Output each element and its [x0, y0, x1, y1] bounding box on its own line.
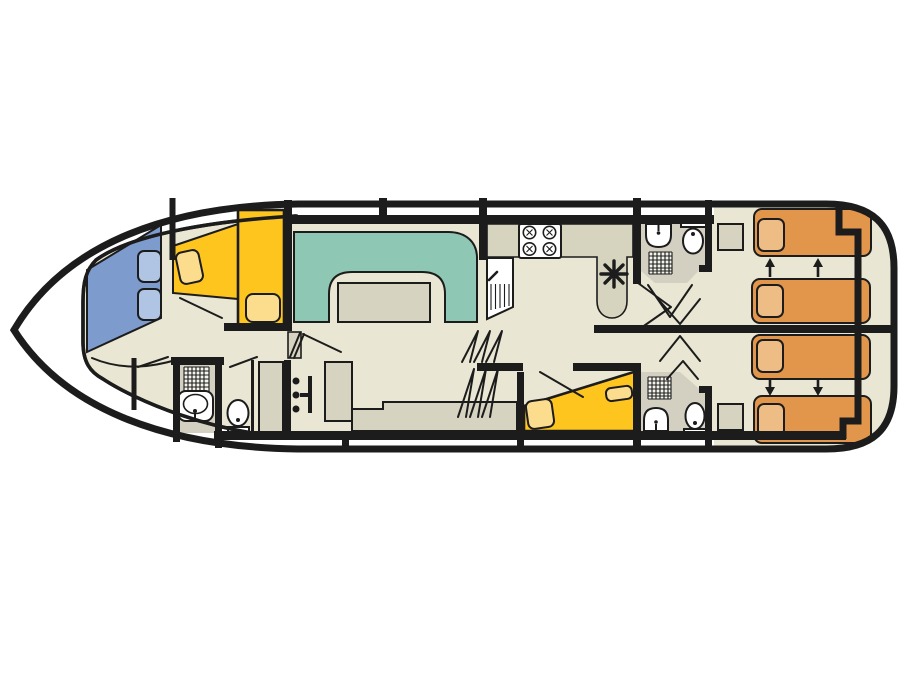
wall-bottom	[214, 431, 846, 440]
stove-icon	[519, 224, 561, 258]
saloon-seat	[325, 362, 352, 421]
deck-plan-canvas	[0, 0, 900, 675]
aft-bed-pillow	[758, 219, 784, 251]
toilet-icon	[684, 403, 706, 435]
bow-berth-pillow	[138, 251, 161, 282]
wall-bath-top-stub	[699, 265, 712, 272]
wall-bath-top-left	[633, 198, 641, 284]
wall-bow-bath-right	[215, 357, 222, 448]
wall-mid-cabin-top-a	[477, 363, 523, 371]
wall-mid-cabin-top-b	[573, 363, 637, 371]
aft-cabinet	[718, 404, 743, 430]
wall-bow-bulkhead	[284, 200, 292, 331]
sink-icon	[644, 408, 668, 431]
wall-helm	[284, 360, 291, 433]
aft-bed-pillow	[757, 340, 783, 372]
mid-cabin-pillow	[525, 398, 555, 429]
mid-cabin-pillow	[605, 385, 633, 401]
wall-bath-bottom-left	[633, 363, 641, 452]
boat-deck-plan	[0, 0, 900, 675]
wall-bath-bottom-stub	[699, 386, 712, 393]
wall-toilet-divider	[251, 360, 254, 433]
wall-top	[288, 215, 714, 224]
helm-console	[259, 362, 283, 432]
shower-icon	[184, 367, 209, 392]
wall-bow-bath-left	[173, 357, 180, 442]
bow-berth-pillow	[246, 294, 280, 322]
dinette-table-icon	[338, 283, 430, 322]
wall-bow-berth	[170, 198, 176, 260]
wall-bath-top-right	[705, 200, 712, 272]
aft-cabinet	[718, 224, 743, 250]
shower-icon	[649, 252, 672, 274]
bow-berth-pillow	[138, 289, 161, 320]
shower-icon	[648, 377, 671, 399]
sink-icon	[646, 224, 671, 247]
wall-mid-cabin-left	[517, 372, 524, 452]
wall-berth-base	[224, 323, 290, 331]
aft-bed-pillow	[757, 285, 783, 317]
wall-bath-bottom-right	[705, 386, 712, 452]
vent-asterisk-icon	[601, 261, 627, 287]
